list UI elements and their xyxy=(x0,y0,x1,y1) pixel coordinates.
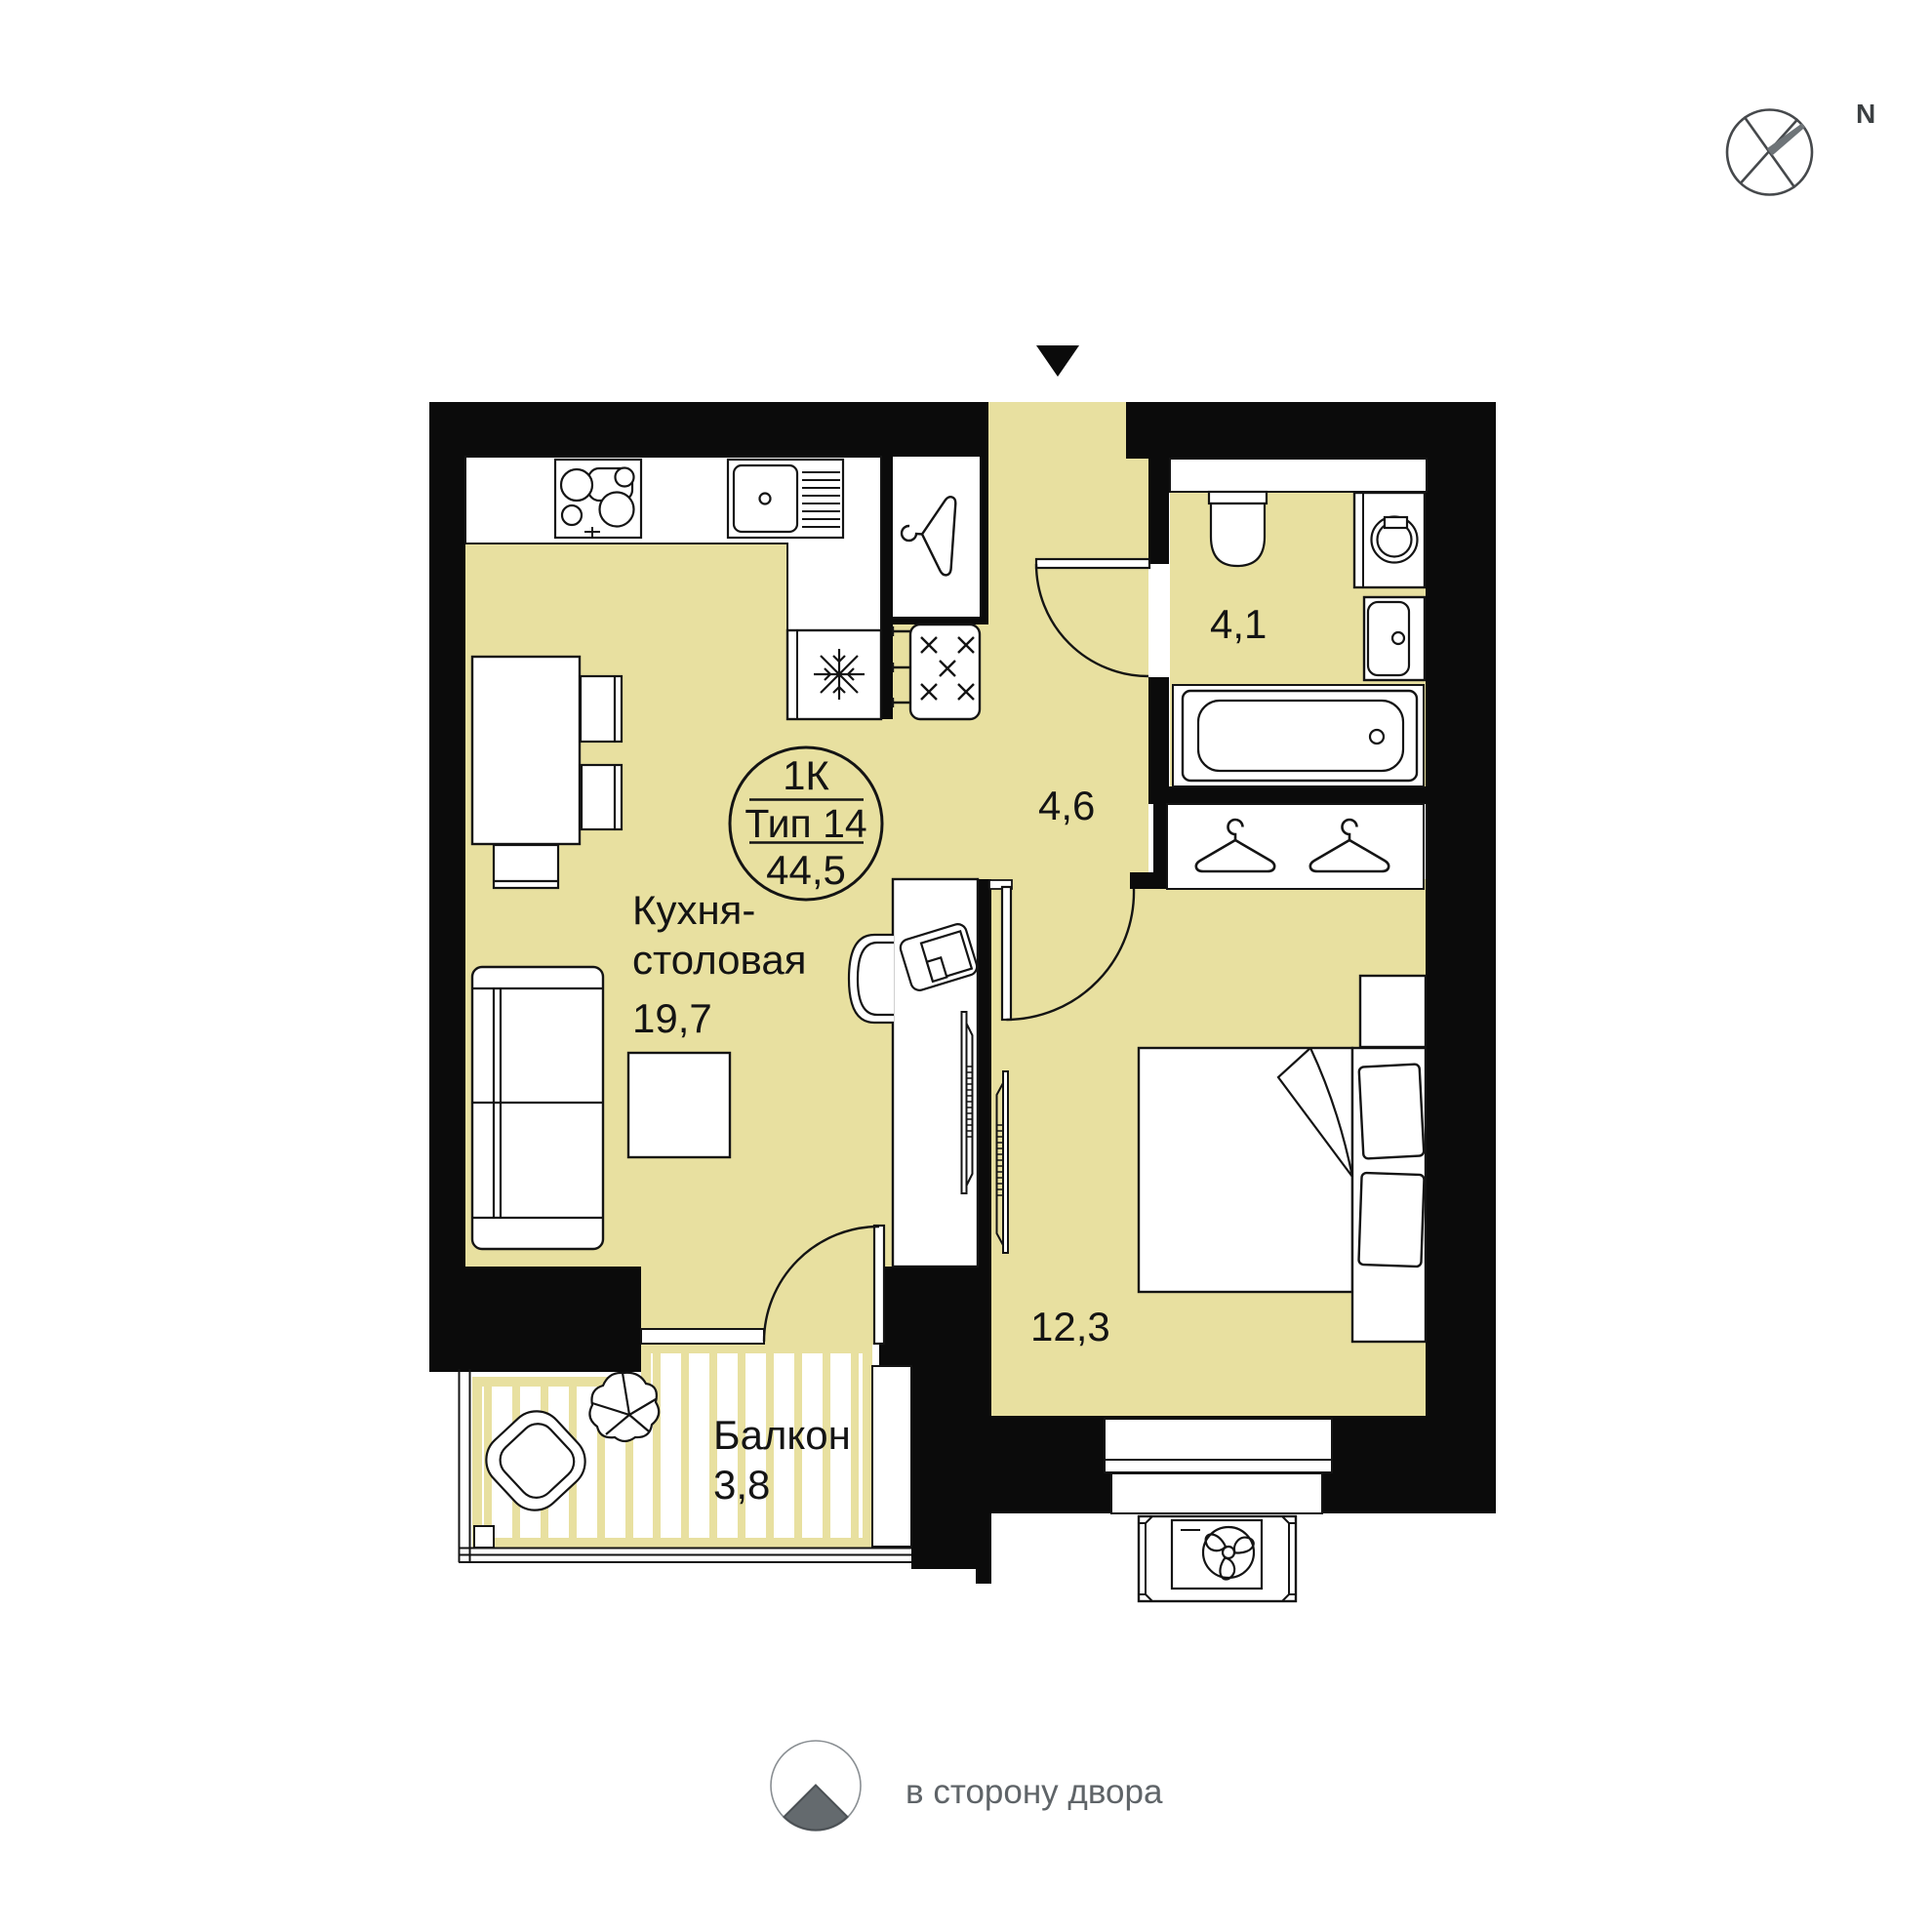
svg-text:Тип 14: Тип 14 xyxy=(745,801,866,846)
svg-text:4,6: 4,6 xyxy=(1038,783,1095,828)
svg-text:Кухня-: Кухня- xyxy=(632,887,755,933)
svg-text:19,7: 19,7 xyxy=(632,995,712,1041)
svg-text:столовая: столовая xyxy=(632,937,806,983)
svg-text:44,5: 44,5 xyxy=(766,847,846,893)
svg-text:12,3: 12,3 xyxy=(1030,1304,1110,1349)
svg-text:1К: 1К xyxy=(783,752,829,798)
svg-text:в сторону двора: в сторону двора xyxy=(906,1773,1163,1811)
svg-text:N: N xyxy=(1856,99,1875,129)
svg-text:4,1: 4,1 xyxy=(1210,601,1267,647)
svg-text:Балкон: Балкон xyxy=(713,1412,851,1458)
svg-text:3,8: 3,8 xyxy=(713,1462,770,1508)
